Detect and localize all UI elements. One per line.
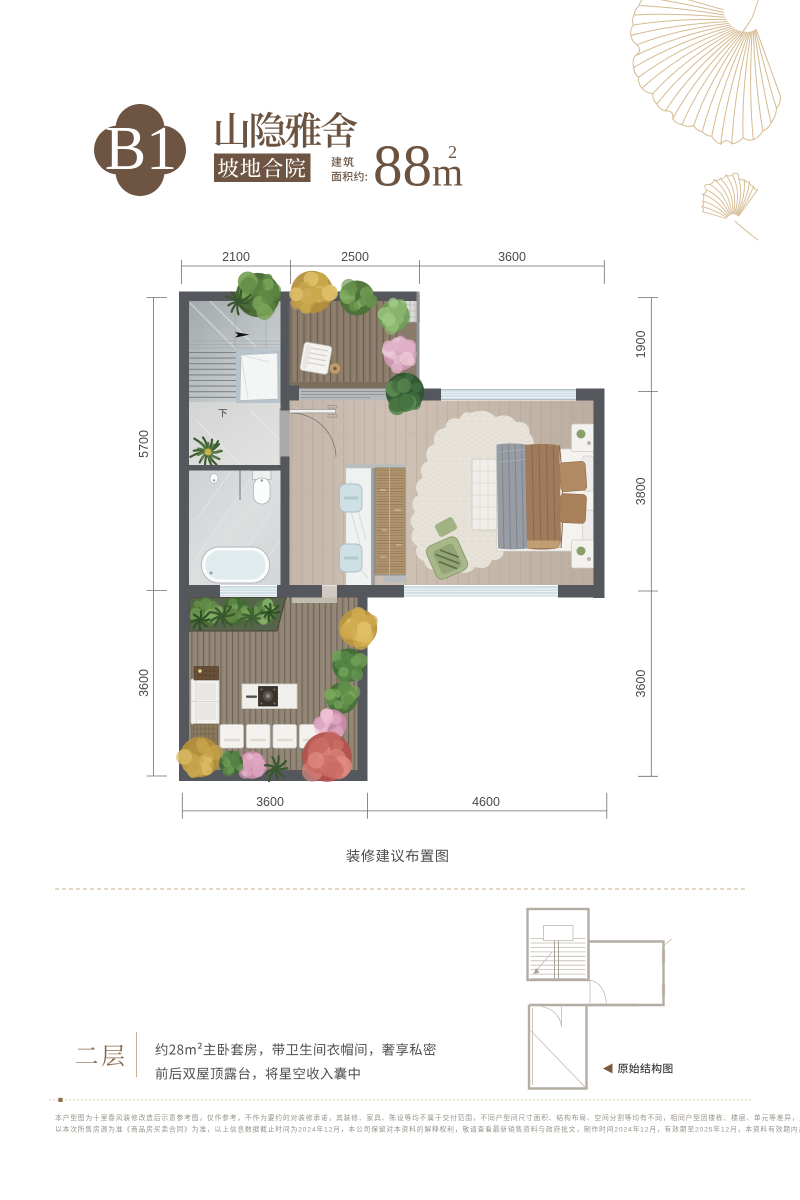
svg-text:3600: 3600 (634, 670, 648, 698)
svg-text:以本次所售房源为准《商品房买卖合同》为准，以上信息数据截止时: 以本次所售房源为准《商品房买卖合同》为准，以上信息数据截止时间为2024年12月… (55, 1125, 800, 1134)
svg-text:1900: 1900 (634, 331, 648, 359)
svg-text:2500: 2500 (341, 250, 369, 264)
svg-text:3800: 3800 (634, 477, 648, 505)
svg-text:3600: 3600 (498, 250, 526, 264)
svg-text:B1: B1 (105, 115, 177, 183)
svg-text:本户型图为十里春风装修改造后示意参考图，仅作参考，不作为要约: 本户型图为十里春风装修改造后示意参考图，仅作参考，不作为要约的对装修承诺，其装修… (55, 1113, 800, 1122)
svg-text:3600: 3600 (137, 669, 151, 697)
svg-text:2100: 2100 (222, 250, 250, 264)
svg-text:2: 2 (448, 142, 457, 162)
svg-text:4600: 4600 (472, 795, 500, 809)
svg-text:5700: 5700 (137, 430, 151, 458)
svg-text:3600: 3600 (256, 795, 284, 809)
